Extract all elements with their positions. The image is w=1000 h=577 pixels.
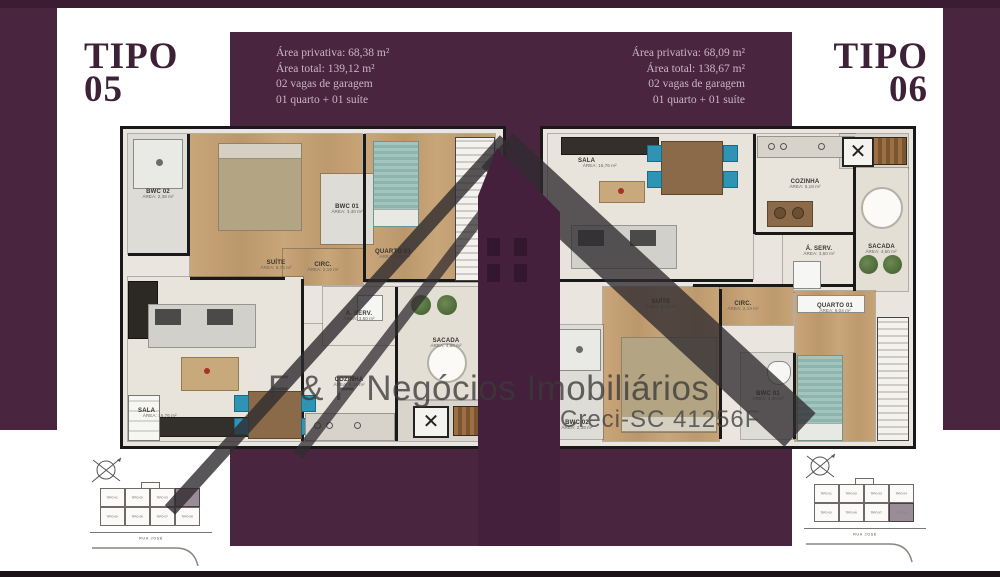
unit-label: TIPO 06 <box>132 515 143 518</box>
unit-label: TIPO 01 <box>821 492 832 495</box>
spec-line: Área privativa: 68,38 m² <box>276 46 476 62</box>
spec-line: 02 vagas de garagem <box>276 77 476 93</box>
room-area: ÁREA: 16,76 m² <box>583 164 617 169</box>
title-tipo-06: TIPO 06 <box>818 40 928 106</box>
spec-line: 01 quarto + 01 suíte <box>545 93 745 109</box>
watermark-license-number: Creci-SC 41256F <box>560 406 760 434</box>
room-label: BWC 01 <box>756 391 780 397</box>
chair-icon <box>234 395 249 412</box>
tv-stand-icon <box>561 137 659 155</box>
wall <box>693 284 855 287</box>
room-area: ÁREA: 8,76 m² <box>645 305 676 310</box>
watermark-company-name: F & F Negócios Imobiliários <box>268 369 709 409</box>
room-area: ÁREA: 2,19 m² <box>727 306 758 311</box>
street-curve <box>802 540 922 566</box>
wall <box>395 287 398 441</box>
spec-line: Área total: 139,12 m² <box>276 62 476 78</box>
spec-line: 01 quarto + 01 suíte <box>276 93 476 109</box>
unit-label: TIPO 07 <box>157 515 168 518</box>
kitchen-island-icon <box>767 201 813 227</box>
double-bed-icon <box>218 143 302 231</box>
chair-icon <box>723 145 738 162</box>
unit-label: TIPO 04 <box>896 492 907 495</box>
toilet-icon <box>767 361 791 385</box>
building-outline: TIPO 01 TIPO 02 TIPO 03 TIPO 04 TIPO 05 … <box>814 482 914 520</box>
building-outline: TIPO 01 TIPO 02 TIPO 03 TIPO 04 TIPO 05 … <box>100 486 200 524</box>
kitchen-counter-icon <box>757 136 855 158</box>
room-label: BWC 02 <box>146 189 170 195</box>
flyer-page: TIPO 05 TIPO 06 Área privativa: 68,38 m²… <box>0 0 1000 577</box>
single-bed-icon <box>797 355 843 441</box>
compass-icon <box>84 452 128 488</box>
unit-label: TIPO 01 <box>107 496 118 499</box>
room-label: COZINHA <box>791 179 820 185</box>
washer-icon <box>793 261 821 289</box>
street-line <box>90 532 212 533</box>
unit-label: TIPO 06 <box>846 511 857 514</box>
top-accent-bar <box>0 0 1000 8</box>
coffee-table-icon <box>181 357 239 391</box>
street-curve <box>88 544 208 570</box>
unit-label: TIPO 05 <box>821 511 832 514</box>
street-label: RUA JOSÉ <box>106 537 197 541</box>
sofa-icon <box>148 304 256 348</box>
round-table-icon <box>861 187 903 229</box>
unit-label: TIPO 08 <box>182 515 193 518</box>
unit-box: TIPO 03 <box>150 488 175 507</box>
stairs-icon <box>873 137 907 165</box>
unit-label: TIPO 05 <box>107 515 118 518</box>
street-line <box>804 528 926 529</box>
compass-icon <box>798 448 842 484</box>
room-label: SACADA <box>868 244 895 250</box>
wardrobe-icon <box>455 137 495 281</box>
dining-table-icon <box>661 141 723 195</box>
wall <box>363 134 366 282</box>
wall <box>753 134 756 234</box>
unit-label: TIPO 03 <box>157 496 168 499</box>
unit-box: TIPO 07 <box>150 507 175 526</box>
desk-icon <box>797 295 865 313</box>
room-label: SUÍTE <box>652 299 671 305</box>
unit-label: TIPO 08 <box>896 511 907 514</box>
sofa-icon <box>571 225 677 269</box>
unit-label: TIPO 04 <box>182 496 193 499</box>
kitchen-counter-icon <box>305 413 395 441</box>
unit-label: TIPO 02 <box>132 496 143 499</box>
room-label: BWC 01 <box>335 204 359 210</box>
unit-label: TIPO 07 <box>871 511 882 514</box>
room-area: ÁREA: 4,60 m² <box>866 250 897 255</box>
room-label: QUARTO 01 <box>375 249 411 255</box>
room-area: ÁREA: 2,38 m² <box>142 194 173 199</box>
single-bed-icon <box>373 141 419 227</box>
room-area: ÁREA: 2,19 m² <box>307 267 338 272</box>
room-label: CIRC. <box>314 262 331 268</box>
washer-icon <box>357 295 383 321</box>
unit-box: TIPO 05 <box>100 507 125 526</box>
shower-icon <box>133 139 183 189</box>
unit-box-highlighted: TIPO 08 <box>889 503 914 522</box>
chair-icon <box>647 171 662 188</box>
unit-box: TIPO 04 <box>889 484 914 503</box>
wall <box>190 277 285 280</box>
room-area: ÁREA: 3,40 m² <box>331 209 362 214</box>
unit-label: TIPO 03 <box>871 492 882 495</box>
street-label: RUA JOSÉ <box>820 533 911 537</box>
unit-box: TIPO 02 <box>839 484 864 503</box>
wall <box>548 279 753 282</box>
specs-tipo-06: Área privativa: 68,09 m² Área total: 138… <box>545 46 745 108</box>
title-tipo-06-line2: 06 <box>818 73 928 106</box>
plant-icon <box>859 255 878 274</box>
spec-line: Área total: 138,67 m² <box>545 62 745 78</box>
unit-box: TIPO 06 <box>125 507 150 526</box>
unit-box: TIPO 01 <box>100 488 125 507</box>
unit-box-highlighted: TIPO 04 <box>175 488 200 507</box>
unit-box: TIPO 03 <box>864 484 889 503</box>
room-label: Á. SERV. <box>806 246 833 252</box>
elevator-icon: ✕ <box>842 137 874 167</box>
unit-box: TIPO 08 <box>175 507 200 526</box>
title-tipo-05-line2: 05 <box>84 73 178 106</box>
room-area: ÁREA: 5,18 m² <box>789 184 820 189</box>
title-tipo-05: TIPO 05 <box>84 40 178 106</box>
chair-icon <box>234 418 249 435</box>
chair-icon <box>647 145 662 162</box>
stairs-icon <box>453 406 493 436</box>
specs-tipo-05: Área privativa: 68,38 m² Área total: 139… <box>276 46 476 108</box>
wardrobe-icon <box>877 317 909 441</box>
appliance-icon <box>128 395 160 441</box>
spec-line: 02 vagas de garagem <box>545 77 745 93</box>
room-area: ÁREA: 3,40 m² <box>752 396 783 401</box>
wall <box>187 134 190 256</box>
chair-icon <box>723 171 738 188</box>
keyplan-tipo-05: TIPO 01 TIPO 02 TIPO 03 TIPO 04 TIPO 05 … <box>78 450 238 565</box>
left-accent-strip <box>0 8 57 430</box>
wall <box>755 232 855 235</box>
unit-box: TIPO 06 <box>839 503 864 522</box>
elevator-icon: ✕ <box>413 406 449 438</box>
plant-icon <box>883 255 902 274</box>
unit-box: TIPO 02 <box>125 488 150 507</box>
unit-box: TIPO 05 <box>814 503 839 522</box>
wall <box>128 253 190 256</box>
plant-icon <box>411 295 431 315</box>
room-label: CIRC. <box>734 301 751 307</box>
right-accent-strip <box>943 8 1000 430</box>
coffee-table-icon <box>599 181 645 203</box>
wall <box>793 353 796 439</box>
plant-icon <box>437 295 457 315</box>
wall <box>853 165 856 291</box>
unit-box: TIPO 07 <box>864 503 889 522</box>
room-label: SALA <box>578 158 595 164</box>
spec-line: Área privativa: 68,09 m² <box>545 46 745 62</box>
bottom-accent-bar <box>0 571 1000 577</box>
unit-label: TIPO 02 <box>846 492 857 495</box>
room-area: ÁREA: 3,50 m² <box>803 252 834 257</box>
room-area: ÁREA: 9,04 m² <box>379 255 410 260</box>
unit-box: TIPO 01 <box>814 484 839 503</box>
shower-icon <box>555 329 601 371</box>
keyplan-tipo-06: TIPO 01 TIPO 02 TIPO 03 TIPO 04 TIPO 05 … <box>792 446 952 561</box>
